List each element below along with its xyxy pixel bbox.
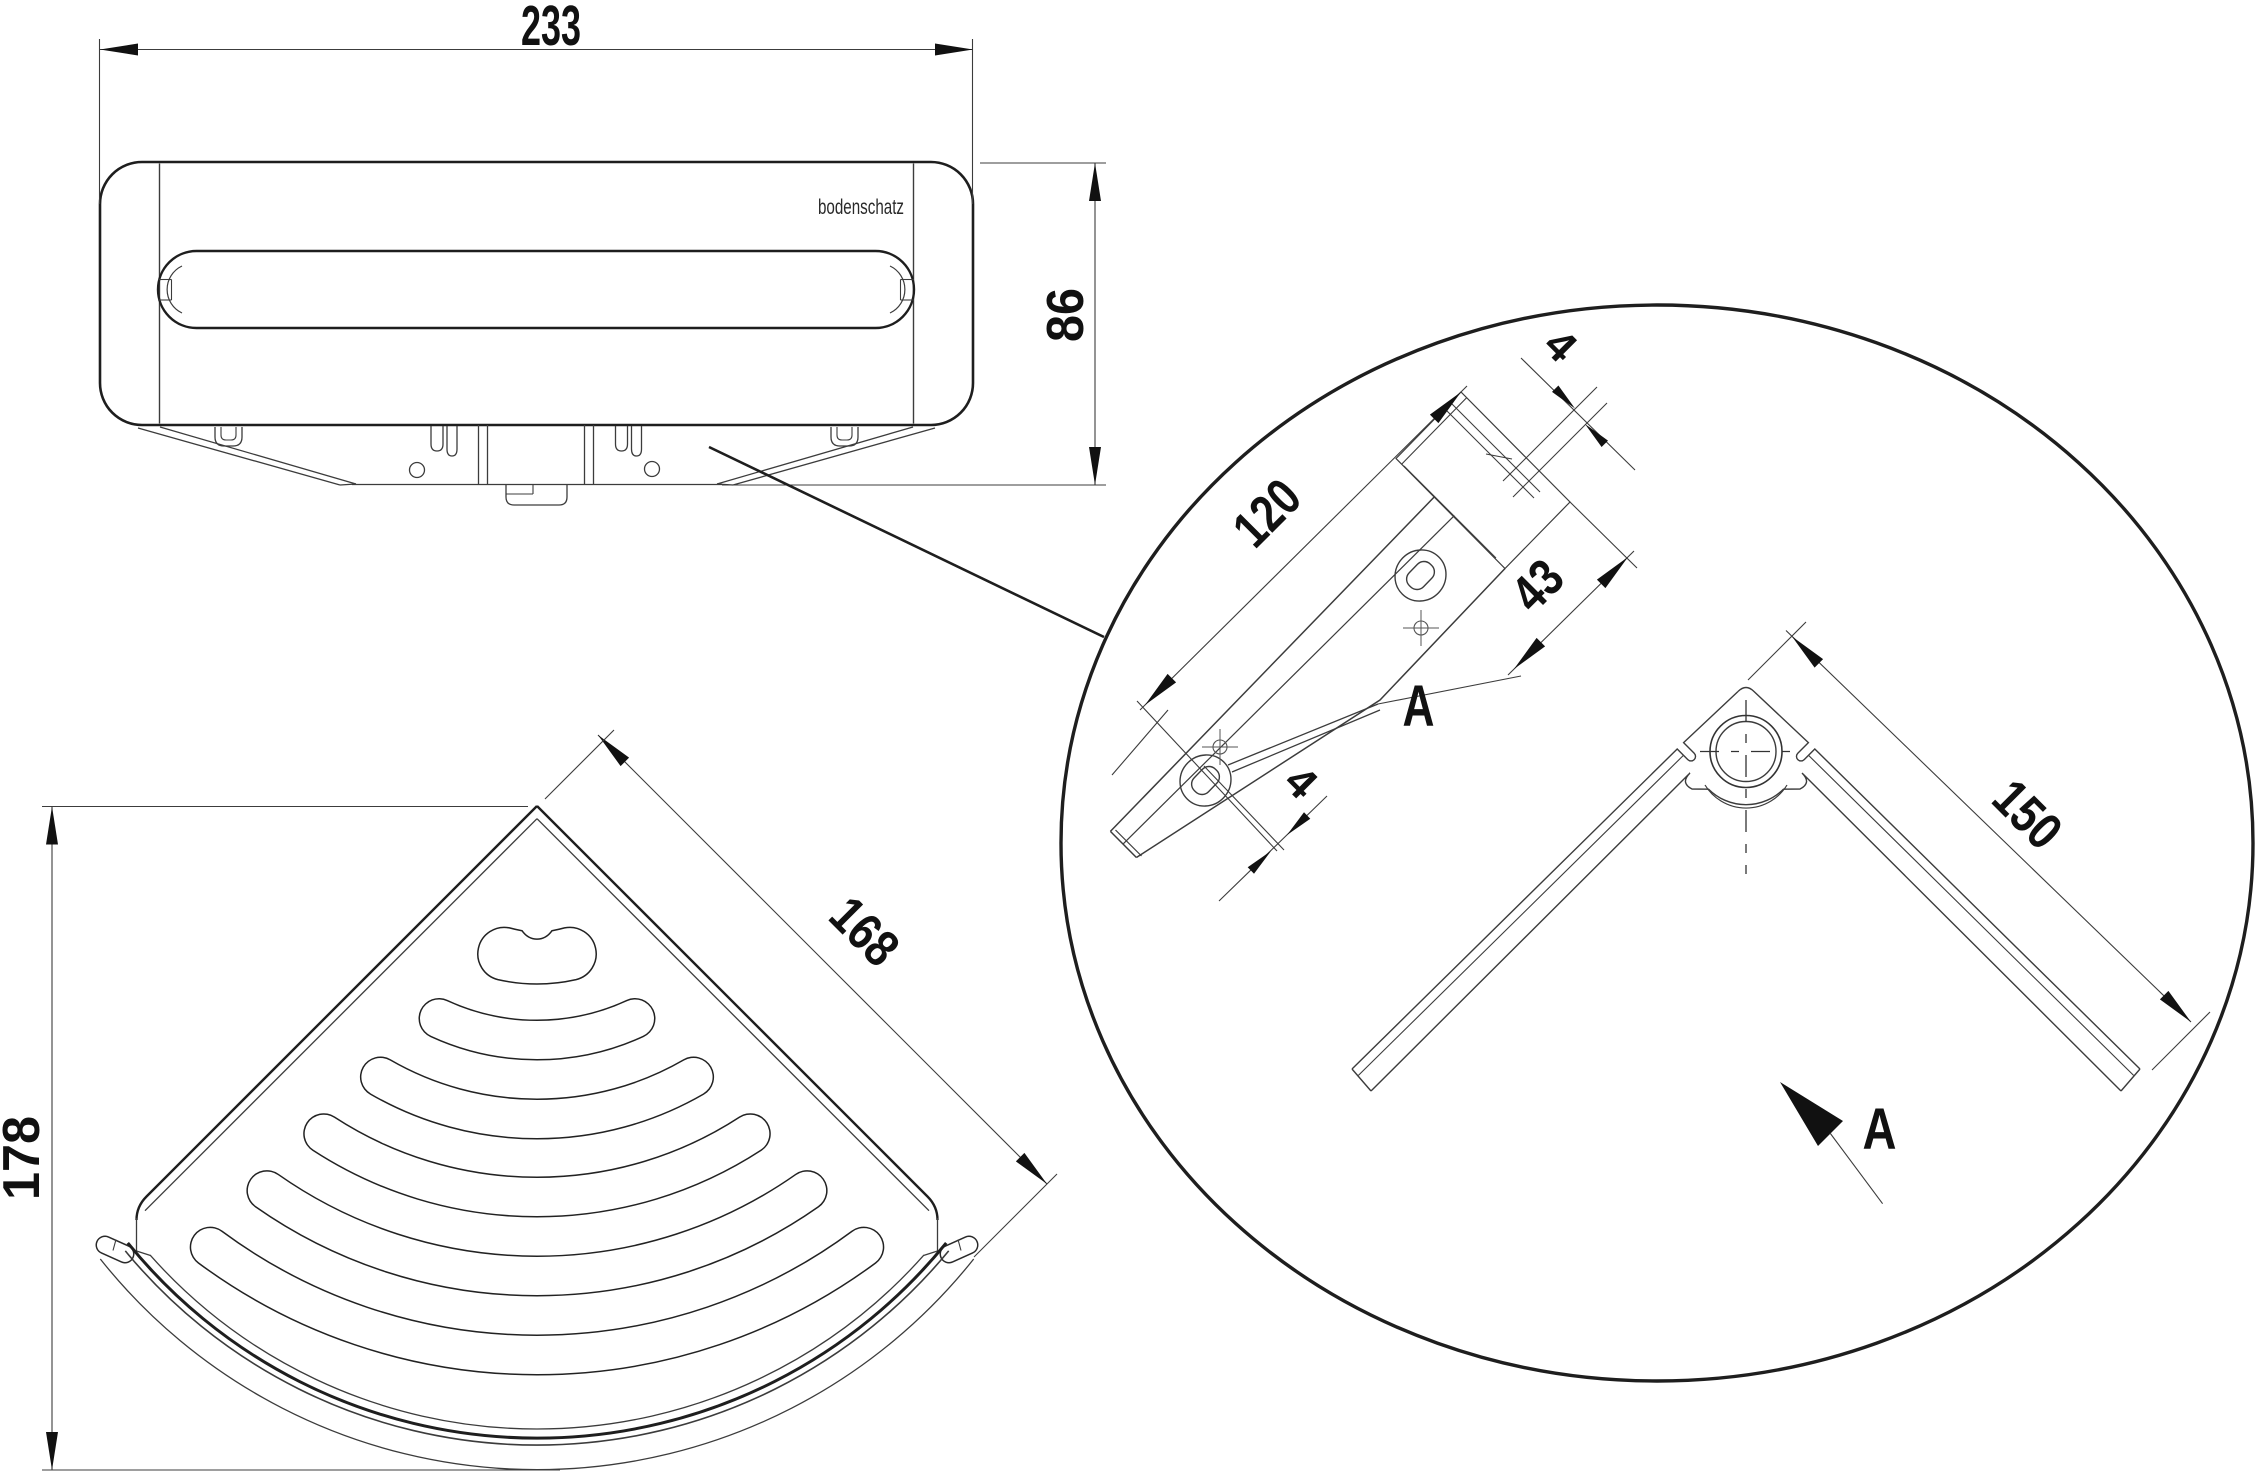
svg-text:178: 178: [0, 1116, 51, 1200]
svg-text:bodenschatz: bodenschatz: [818, 196, 904, 219]
svg-text:86: 86: [1037, 288, 1095, 342]
svg-text:233: 233: [521, 0, 581, 58]
svg-text:A: A: [1403, 674, 1435, 739]
svg-text:A: A: [1863, 1097, 1897, 1162]
